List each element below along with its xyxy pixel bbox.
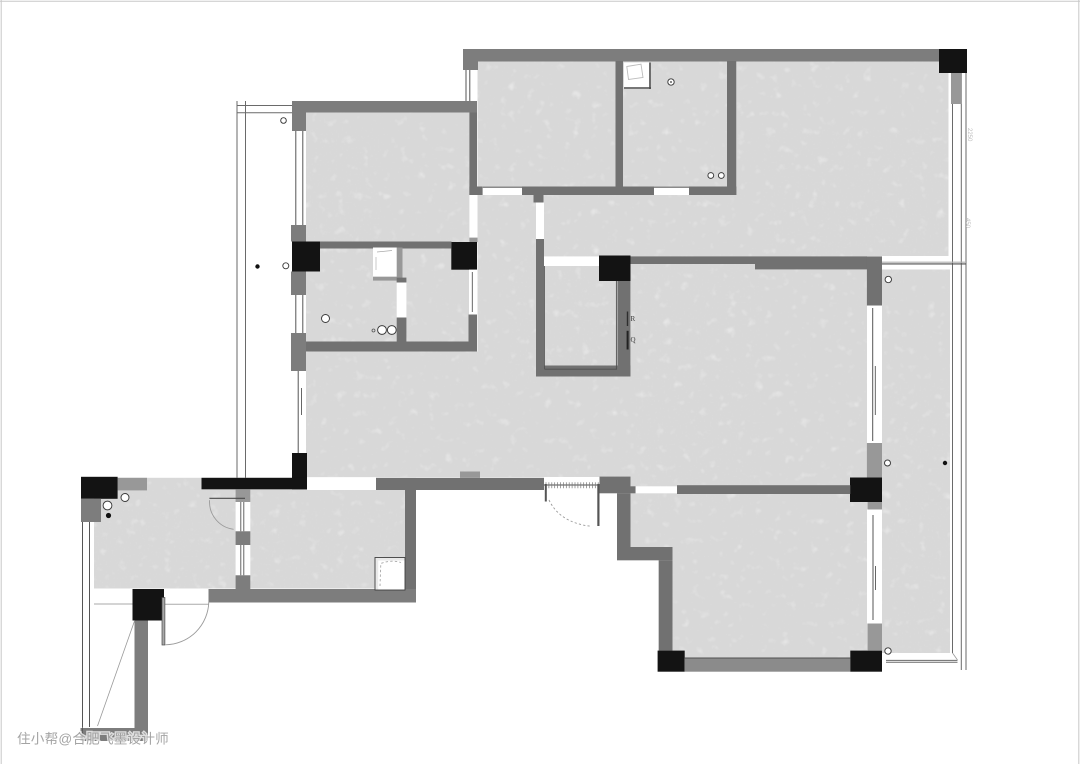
svg-text:R: R xyxy=(631,315,636,323)
svg-text:住小帮@合肥飞墨设计师: 住小帮@合肥飞墨设计师 xyxy=(17,732,169,747)
svg-text:450: 450 xyxy=(964,218,970,229)
svg-text:2250: 2250 xyxy=(966,128,972,142)
svg-text:Q: Q xyxy=(631,336,636,344)
